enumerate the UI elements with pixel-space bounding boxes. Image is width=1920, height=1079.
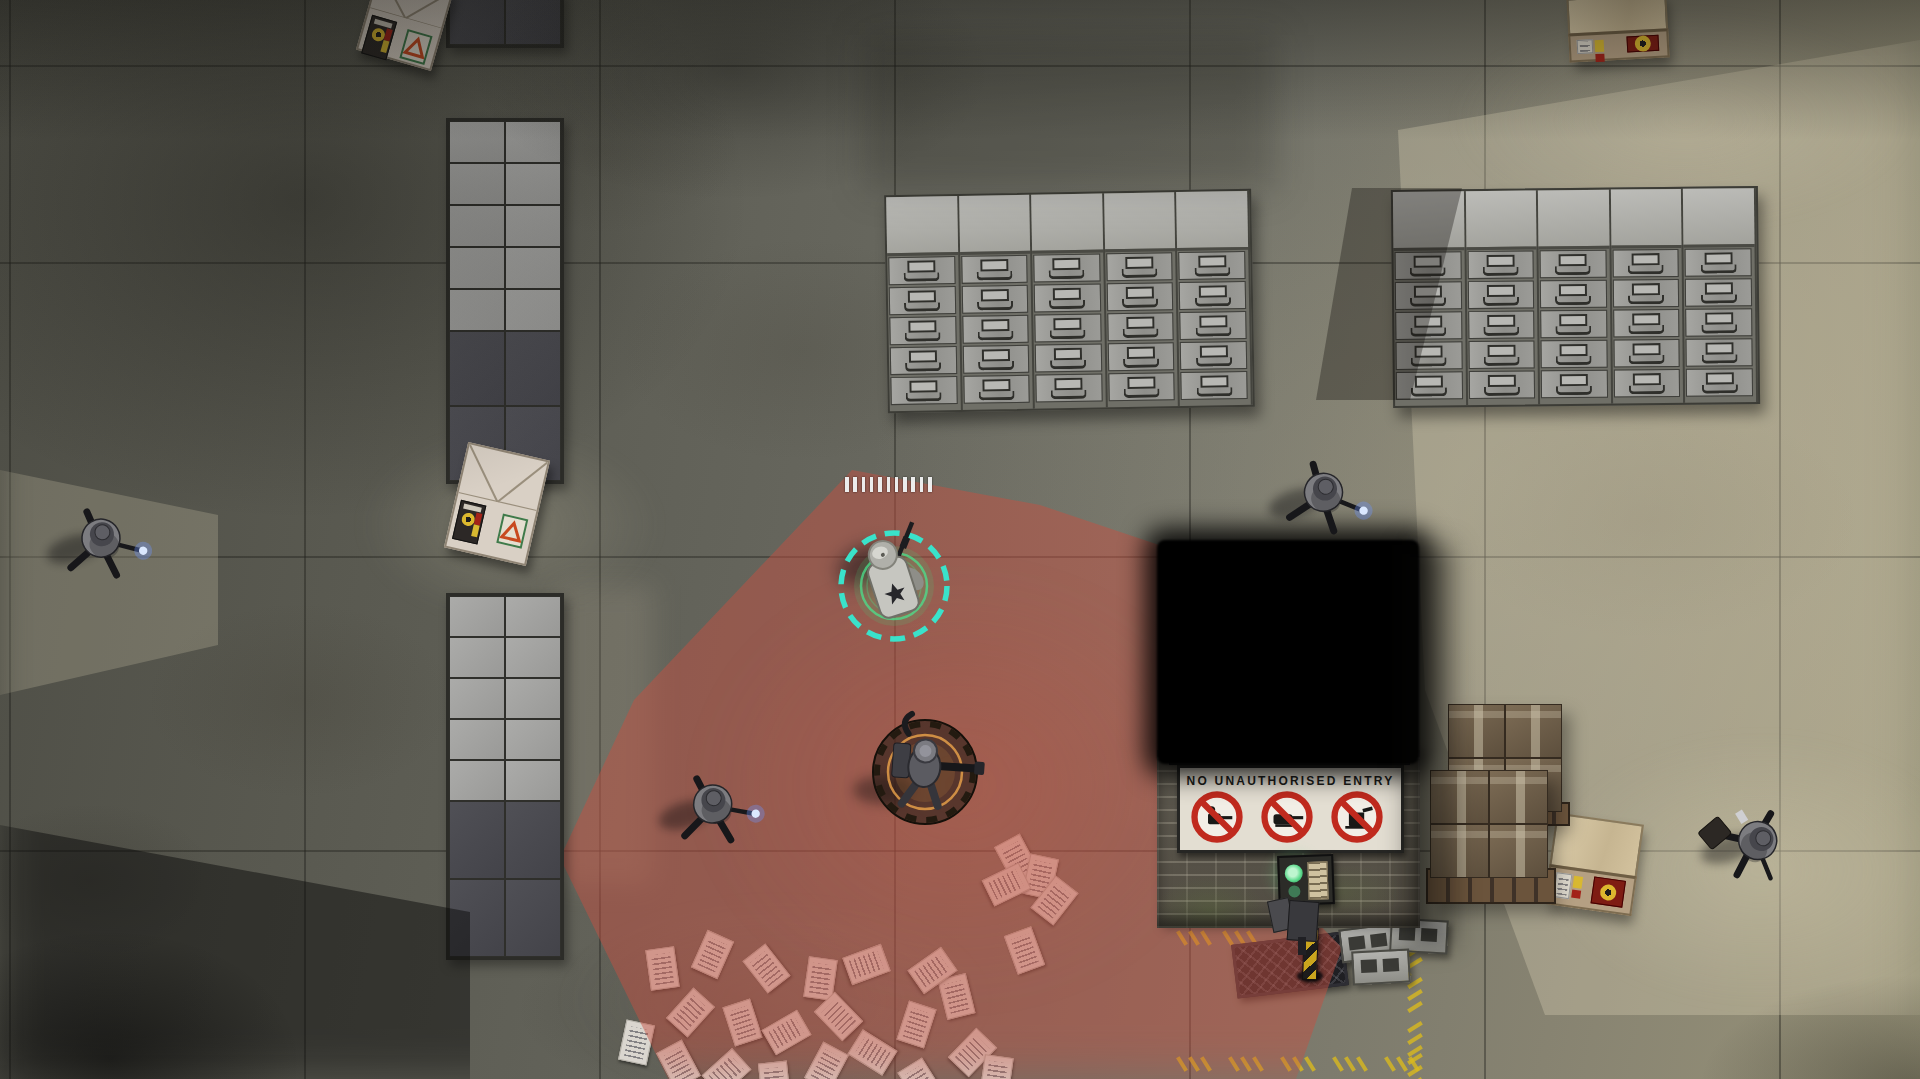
ammo-tick xyxy=(845,477,849,492)
ammo-tick xyxy=(895,477,899,492)
ammo-tick xyxy=(878,477,882,492)
ammo-tick xyxy=(862,477,866,492)
ammo-ticks-hud xyxy=(0,0,1920,1079)
ammo-tick xyxy=(903,477,907,492)
ammo-tick xyxy=(920,477,924,492)
ammo-tick xyxy=(870,477,874,492)
game-viewport: NO UNAUTHORISED ENTRY xyxy=(0,0,1920,1079)
ammo-tick xyxy=(928,477,932,492)
ammo-tick xyxy=(853,477,857,492)
ammo-tick xyxy=(887,477,891,492)
ammo-tick xyxy=(911,477,915,492)
